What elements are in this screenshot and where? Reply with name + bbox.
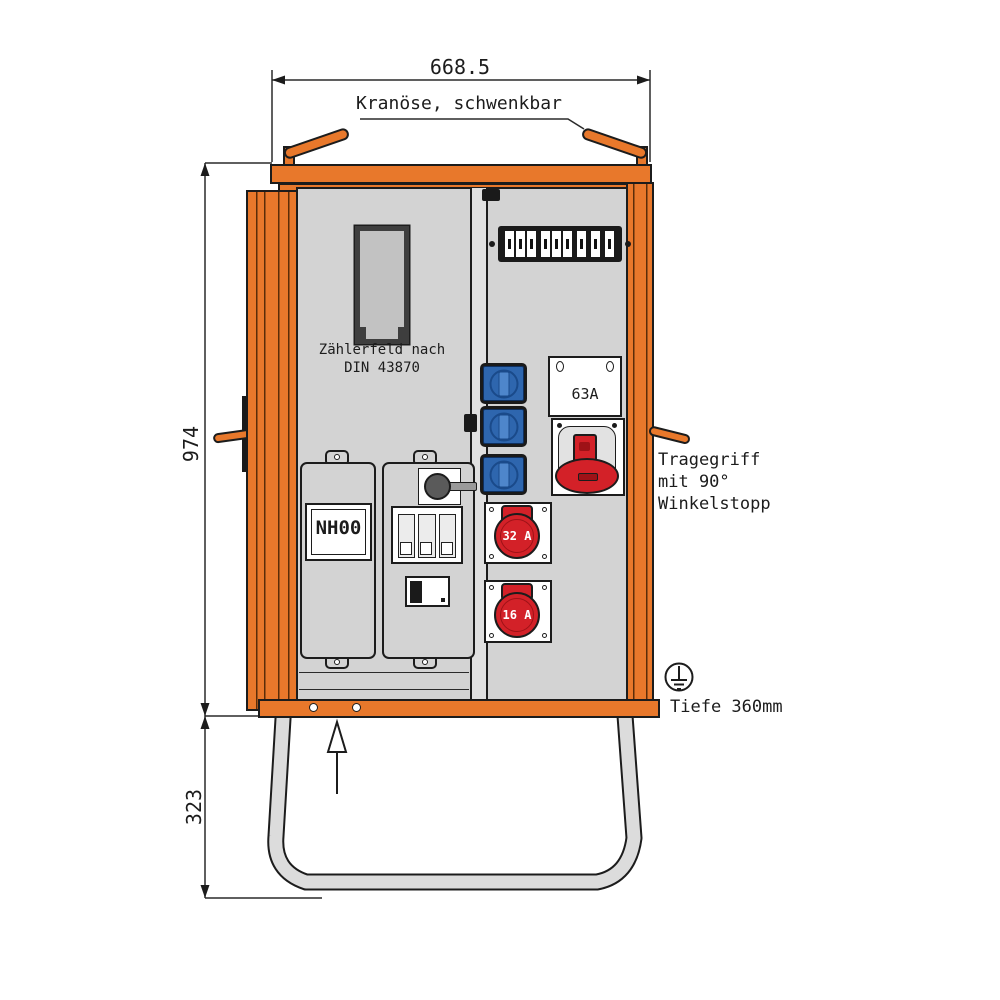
three-pole-breaker	[391, 506, 463, 564]
dimension-label-height-upper: 974	[180, 414, 202, 474]
divider-latch-middle	[464, 414, 477, 432]
divider-latch-top	[482, 189, 500, 201]
cee16-label: 16 A	[503, 608, 532, 622]
crane-eye-label: Kranöse, schwenkbar	[356, 94, 596, 114]
cee32-label: 32 A	[503, 529, 532, 543]
mcb-module	[516, 231, 525, 257]
schuko-socket-3	[480, 454, 527, 495]
dimension-label-width: 668.5	[408, 56, 512, 78]
base-screw	[352, 703, 361, 712]
cee16-socket: 16 A	[494, 592, 540, 638]
breaker-pole	[418, 514, 435, 558]
schuko-socket-1	[480, 363, 527, 404]
schuko-face	[483, 409, 524, 444]
crane-label-leader-line	[360, 119, 584, 129]
breaker-pole	[398, 514, 415, 558]
cee63-lid	[555, 458, 619, 494]
meter-field-label-line1: Zählerfeld nach	[297, 343, 467, 358]
dimension-top-width	[272, 70, 650, 162]
distribution-cabinet-drawing: Zählerfeld nach DIN 43870 NH00	[0, 0, 1000, 1000]
roof-bar	[270, 164, 652, 184]
right-frame-column	[626, 182, 654, 718]
cee63-label: 63A	[548, 386, 622, 403]
schuko-lid	[498, 371, 509, 396]
handle-note-line2: mit 90°	[658, 473, 730, 492]
mcb-module	[541, 231, 550, 257]
cable-entry-arrow-icon	[328, 722, 346, 794]
nh00-label: NH00	[305, 518, 372, 539]
mcb-module	[605, 231, 614, 257]
main-switch-knob	[424, 473, 451, 500]
stand-tube	[276, 702, 634, 882]
mounting-sill-line	[299, 672, 469, 673]
schuko-lid	[498, 462, 509, 487]
cee32-socket: 32 A	[494, 513, 540, 559]
screw	[606, 361, 614, 372]
mcb-breaker-row	[498, 226, 622, 262]
base-screw	[309, 703, 318, 712]
breaker-pole	[439, 514, 456, 558]
left-door-open	[246, 190, 298, 711]
mcb-module	[591, 231, 600, 257]
handle-note-line3: Winkelstopp	[658, 495, 771, 514]
base-bar	[258, 699, 660, 718]
auxiliary-device	[405, 576, 450, 607]
meter-window	[355, 226, 409, 344]
earth-ground-icon	[666, 664, 693, 691]
screw	[557, 423, 562, 428]
mcb-module	[552, 231, 561, 257]
schuko-face	[483, 457, 524, 492]
meter-field-label-line2: DIN 43870	[297, 361, 467, 376]
mcb-module	[563, 231, 572, 257]
mcb-module	[577, 231, 586, 257]
screw	[489, 241, 495, 247]
depth-note: Tiefe 360mm	[670, 698, 783, 717]
schuko-face	[483, 366, 524, 401]
schuko-socket-2	[480, 406, 527, 447]
mounting-sill-line	[299, 689, 469, 690]
mcb-module	[505, 231, 514, 257]
mcb-module	[527, 231, 536, 257]
schuko-lid	[498, 414, 509, 439]
screw	[625, 241, 631, 247]
screw	[556, 361, 564, 372]
screw	[612, 423, 617, 428]
handle-note-line1: Tragegriff	[658, 451, 760, 470]
dimension-label-height-lower: 323	[183, 777, 205, 837]
